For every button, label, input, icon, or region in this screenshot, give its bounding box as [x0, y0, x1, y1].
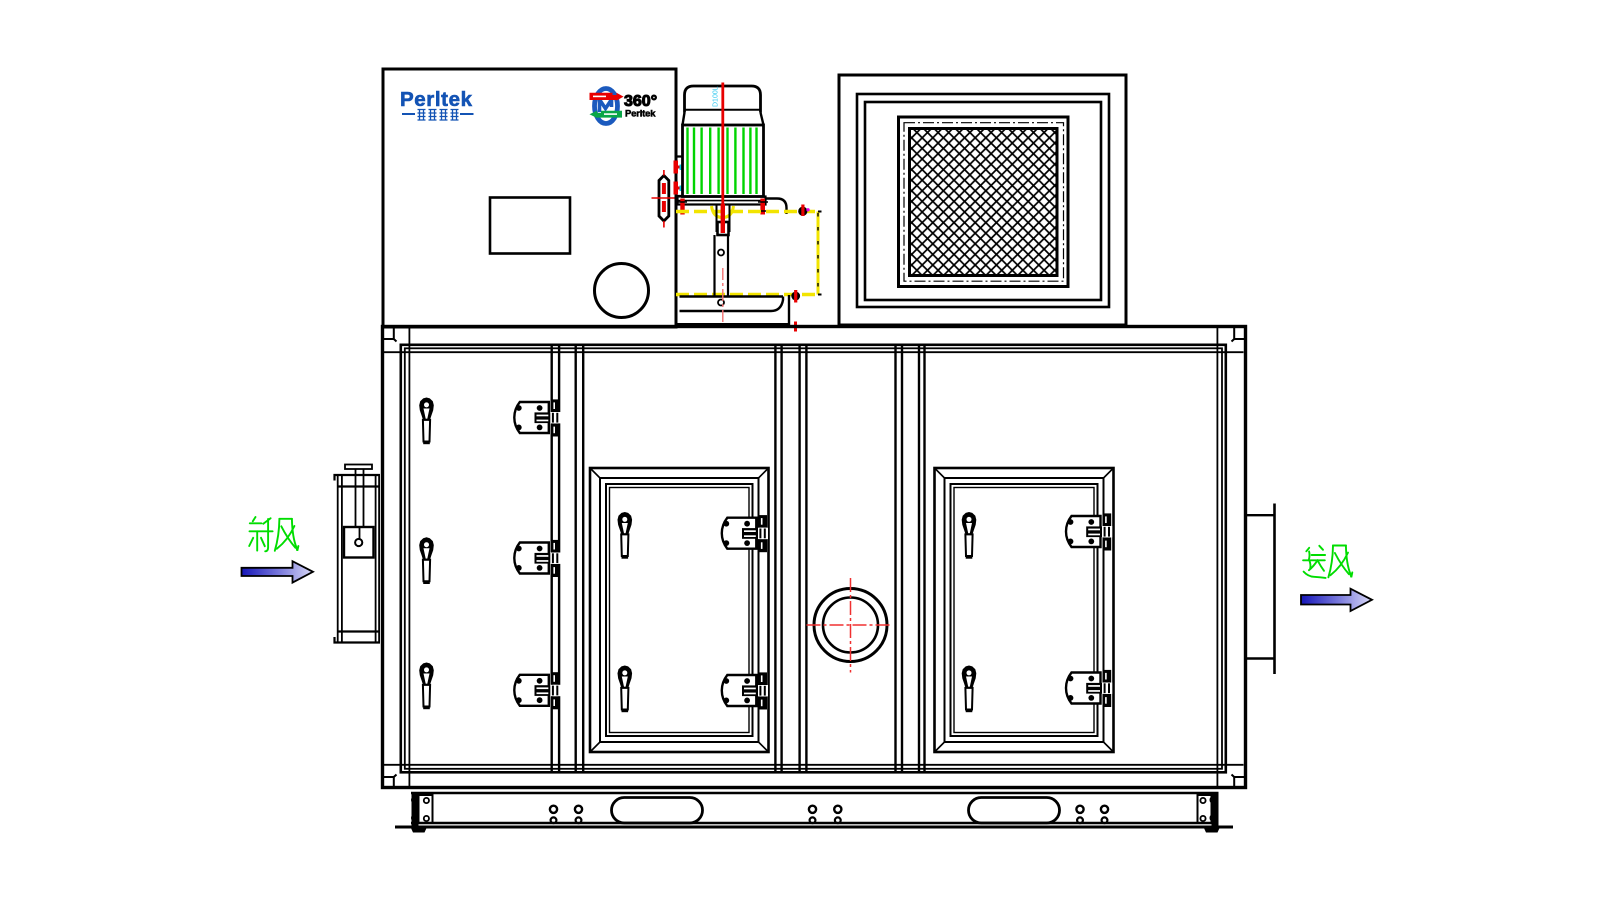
svg-text:360°: 360°	[624, 93, 657, 110]
svg-text:Perltek: Perltek	[625, 109, 656, 120]
svg-text:Perltek: Perltek	[400, 88, 473, 111]
svg-text:D100L: D100L	[713, 86, 720, 107]
